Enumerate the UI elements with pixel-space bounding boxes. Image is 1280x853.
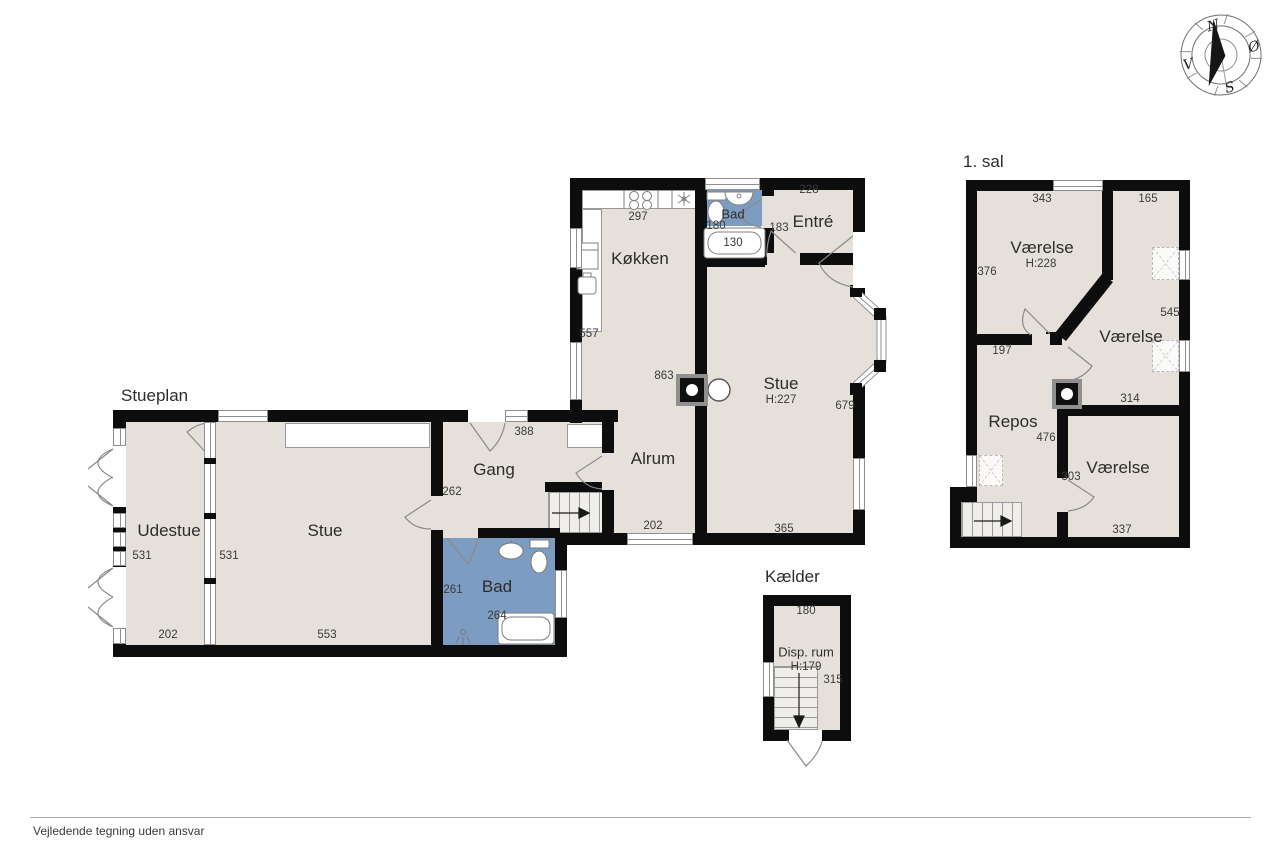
toilet-icon: [707, 192, 726, 200]
window: [505, 410, 528, 422]
window: [113, 428, 126, 446]
door-gap: [431, 496, 443, 530]
wood-stove-icon: [708, 379, 730, 401]
room-label-gang: Gang: [473, 460, 515, 480]
room-label-koekken: Køkken: [611, 249, 669, 269]
plan-title-stueplan: Stueplan: [121, 386, 188, 406]
room-label-vaerelse-1: Værelse: [1010, 238, 1073, 258]
window: [218, 410, 268, 422]
door-gap: [468, 410, 505, 422]
window: [555, 570, 567, 618]
stair-arrows: [552, 508, 1011, 727]
kitchen-fixtures: [577, 190, 690, 294]
door-gap: [1032, 334, 1050, 345]
door-gap: [767, 253, 800, 265]
sink-icon: [499, 543, 523, 559]
window: [763, 662, 774, 697]
floor-plan-canvas: N Ø S V Stueplan 1. sal Kælder Udestue S…: [0, 0, 1280, 853]
dim-label: 343: [1032, 193, 1051, 205]
dim-label: 337: [1112, 524, 1131, 536]
dim-label: 553: [317, 629, 336, 641]
room-label-alrum: Alrum: [631, 449, 675, 469]
dim-label: 388: [514, 426, 533, 438]
dim-label: 476: [1036, 432, 1055, 444]
door-gap: [443, 528, 478, 538]
plan-title-foerste-sal: 1. sal: [963, 152, 1004, 172]
dim-label: 264: [487, 610, 506, 622]
window: [570, 342, 582, 400]
window: [570, 228, 582, 268]
plan-title-kaelder: Kælder: [765, 567, 820, 587]
room-label-repos: Repos: [988, 412, 1037, 432]
window: [113, 513, 126, 528]
dim-label: 130: [723, 237, 742, 249]
dim-label: 183: [769, 222, 788, 234]
window: [113, 551, 126, 566]
dim-label: 202: [643, 520, 662, 532]
dim-label: 863: [654, 370, 673, 382]
dim-label: 180: [706, 220, 725, 232]
compass-rose: N Ø S V: [1172, 6, 1271, 106]
room-height-stue: H:227: [766, 394, 797, 406]
dim-label: 365: [774, 523, 793, 535]
dim-label: 545: [1160, 307, 1179, 319]
door-gap: [113, 567, 126, 628]
dim-label: 165: [1138, 193, 1157, 205]
room-height-disp-rum: H:179: [791, 661, 822, 673]
window: [1179, 250, 1190, 280]
room-label-vaerelse-2: Værelse: [1099, 327, 1162, 347]
door-gap: [789, 730, 822, 741]
room-height-vaerelse-1: H:228: [1026, 258, 1057, 270]
dim-label: 297: [628, 211, 647, 223]
dim-label: 303: [1061, 471, 1080, 483]
extractor-fan-icon: [678, 192, 690, 206]
dim-label: 531: [132, 550, 151, 562]
room-label-stue-left: Stue: [308, 521, 343, 541]
room-label-entre: Entré: [793, 212, 834, 232]
window: [113, 628, 126, 644]
window: [1053, 180, 1103, 191]
dim-label: 197: [992, 345, 1011, 357]
dim-label: 228: [799, 184, 818, 196]
room-label-stue: Stue: [764, 374, 799, 394]
dim-label: 679: [835, 400, 854, 412]
room-label-bad-nede: Bad: [482, 577, 512, 597]
window: [627, 533, 693, 545]
dim-label: 262: [442, 486, 461, 498]
skylight-crosses: [980, 248, 1178, 485]
kitchen-sink-icon: [578, 277, 596, 294]
door-gap: [1057, 478, 1068, 512]
dim-label: 531: [219, 550, 238, 562]
toilet-icon: [530, 540, 549, 548]
dim-label: 180: [796, 605, 815, 617]
dim-label: 261: [443, 584, 462, 596]
room-label-disp-rum: Disp. rum: [778, 645, 834, 660]
room-label-udestue: Udestue: [137, 521, 200, 541]
front-door-gap: [853, 232, 865, 288]
door-gap: [113, 446, 126, 507]
plan-vector-overlay: N Ø S V: [0, 0, 1280, 853]
window: [1179, 340, 1190, 372]
chimney-stueplan: [676, 374, 708, 406]
window: [113, 532, 126, 547]
glass-partition: [204, 422, 216, 645]
door-gap: [602, 453, 614, 490]
dim-label: 202: [158, 629, 177, 641]
window: [705, 178, 760, 190]
chimney-foerste-sal: [1052, 379, 1082, 409]
shower-icon: [456, 630, 470, 646]
dim-label: 315: [823, 674, 842, 686]
partition-post: [204, 513, 216, 519]
partition-post: [204, 458, 216, 464]
room-label-vaerelse-3: Værelse: [1086, 458, 1149, 478]
dim-label: 557: [579, 328, 598, 340]
bay-window: [850, 285, 886, 395]
partition-post: [204, 578, 216, 584]
dim-label: 314: [1120, 393, 1139, 405]
window: [966, 455, 977, 487]
window: [853, 458, 865, 510]
dim-label: 376: [977, 266, 996, 278]
